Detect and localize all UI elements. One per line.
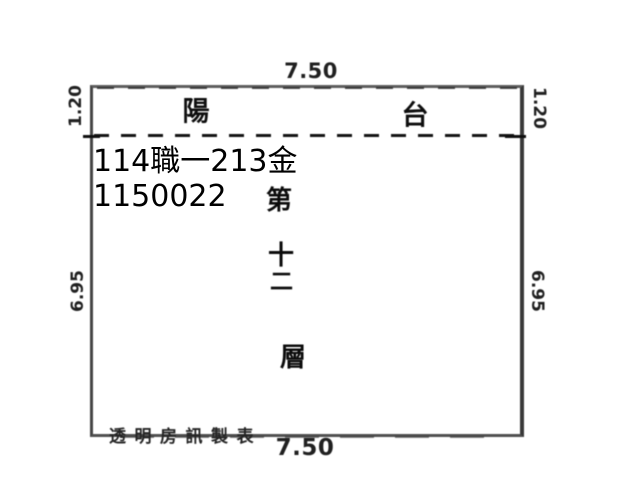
watermark-line-1: 114職一213金	[93, 144, 298, 179]
credit-text: 透明房訊製表	[109, 422, 262, 447]
dimension-bottom: 7.50	[276, 435, 335, 461]
balcony-divider-line	[94, 134, 521, 137]
floor-plan-drawing: 陽 台 7.50 7.50 1.20 1.20 6.95 6.95 第 十 二 …	[0, 0, 624, 480]
watermark-line-2: 1150022	[93, 179, 298, 214]
balcony-tick-left	[83, 135, 100, 138]
balcony-tick-right	[505, 135, 526, 138]
floor-label-char-2: 十	[268, 243, 294, 269]
floor-label-char-3: 二	[270, 271, 293, 294]
dimension-right-lower: 6.95	[527, 270, 547, 312]
watermark: 114職一213金 1150022	[93, 144, 298, 214]
balcony-label-left-char: 陽	[183, 90, 210, 129]
balcony-label-right-char: 台	[402, 94, 429, 133]
dimension-right-upper: 1.20	[529, 87, 549, 129]
floor-label-char-4: 層	[280, 345, 306, 371]
unit-outline	[90, 85, 524, 437]
floor-plan-page: 陽 台 7.50 7.50 1.20 1.20 6.95 6.95 第 十 二 …	[0, 0, 624, 480]
top-edge-scan-texture	[97, 87, 517, 89]
dimension-top: 7.50	[284, 59, 338, 83]
dimension-left-lower: 6.95	[68, 270, 88, 312]
dimension-left-upper: 1.20	[66, 85, 86, 127]
